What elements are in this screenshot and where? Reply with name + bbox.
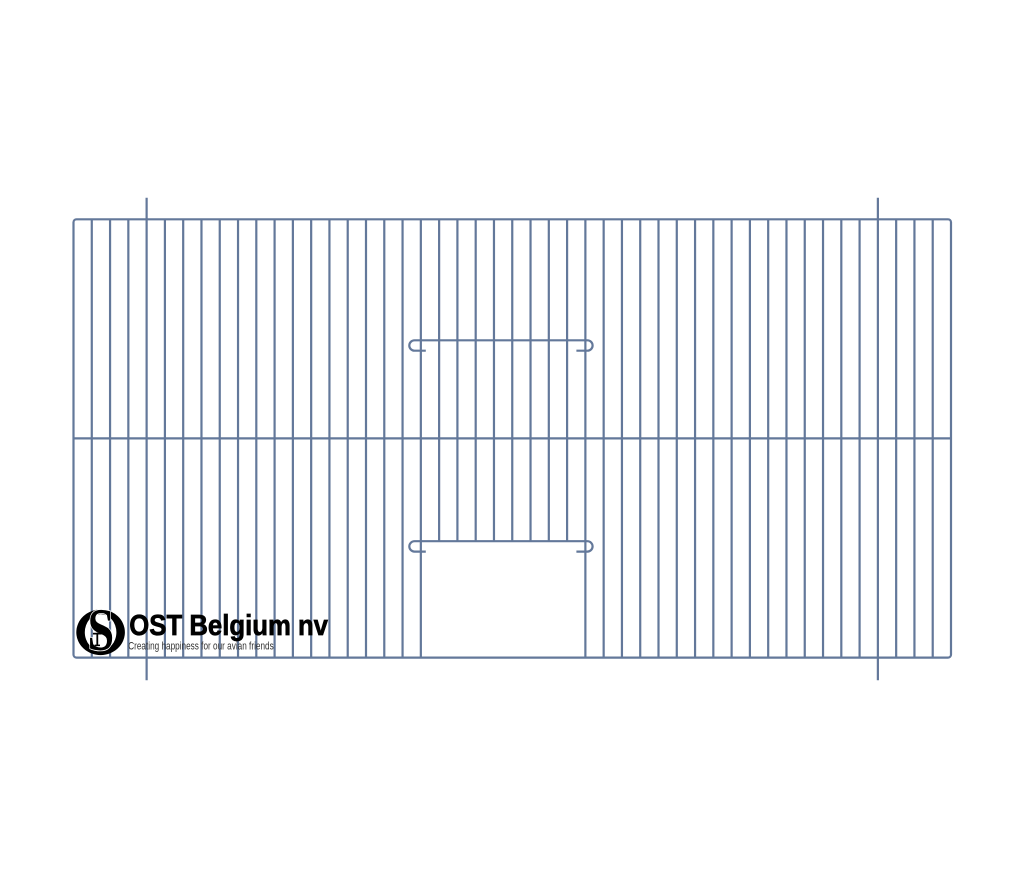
svg-text:OST Belgium nv: OST Belgium nv	[129, 610, 328, 642]
svg-text:S: S	[87, 597, 114, 663]
svg-text:Creating happiness for our avi: Creating happiness for our avian friends	[128, 641, 274, 653]
